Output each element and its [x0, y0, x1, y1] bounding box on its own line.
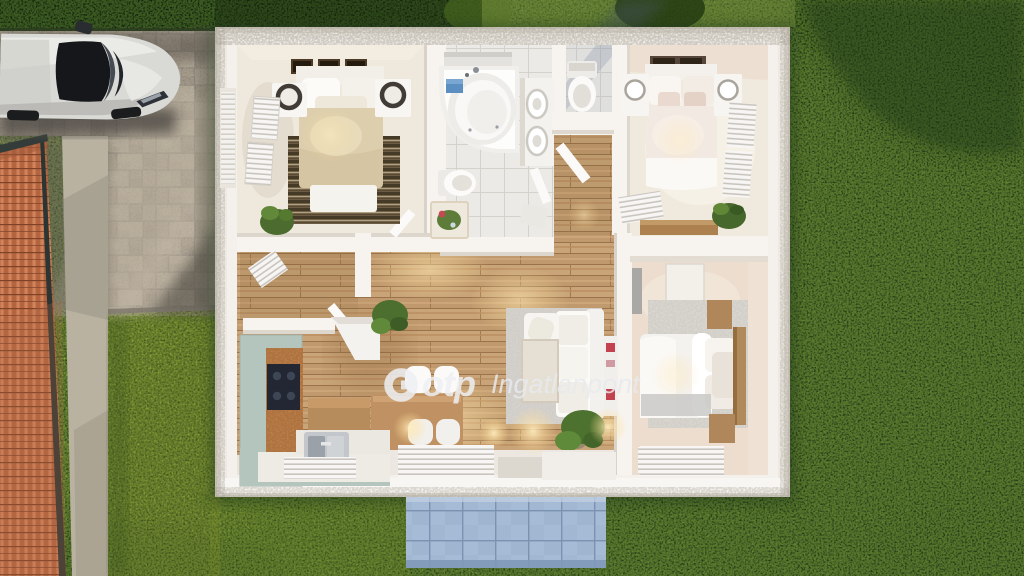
- svg-text:otp: otp: [422, 363, 475, 404]
- svg-text:Ingatlanpont: Ingatlanpont: [491, 369, 641, 399]
